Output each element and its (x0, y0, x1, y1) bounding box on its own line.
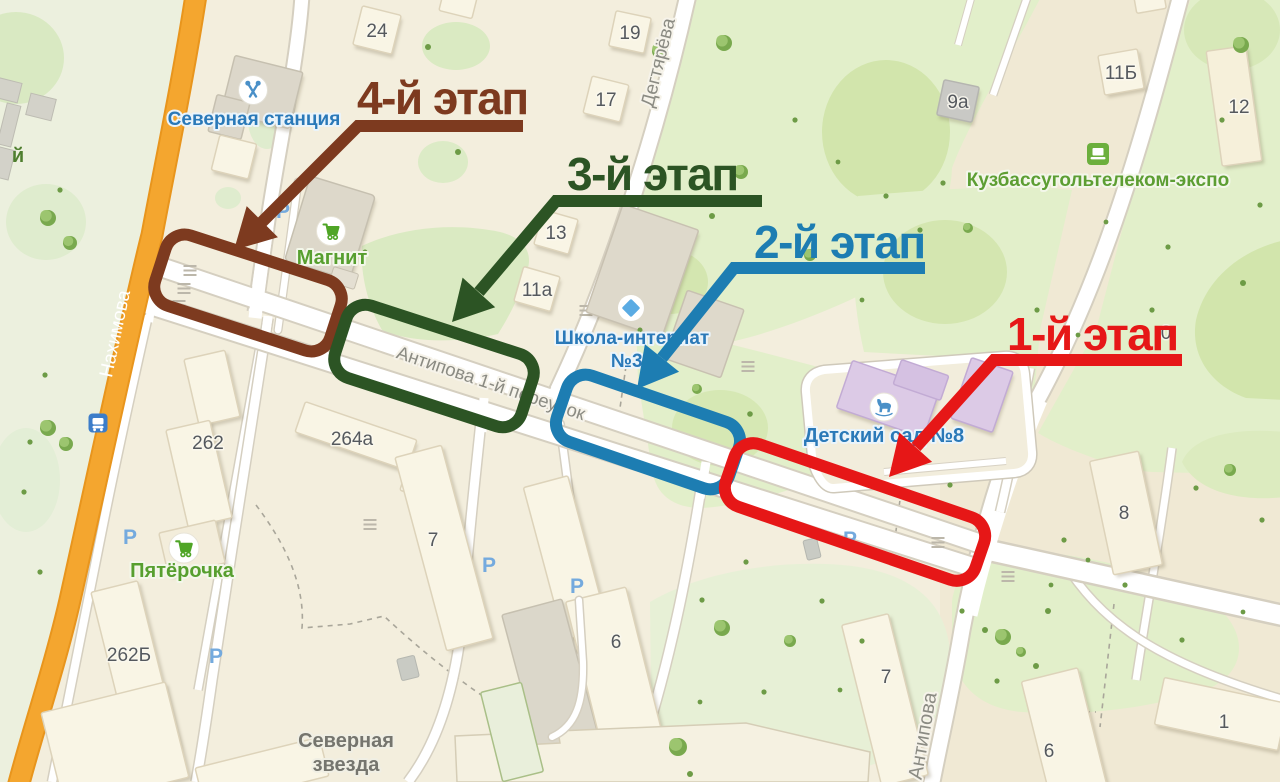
svg-text:1-й этап: 1-й этап (1007, 308, 1178, 360)
svg-text:Пятёрочка: Пятёрочка (130, 560, 235, 582)
svg-text:Р: Р (123, 526, 137, 549)
svg-text:2-й этап: 2-й этап (754, 216, 925, 268)
svg-text:Магнит: Магнит (297, 247, 368, 269)
svg-text:8: 8 (1119, 503, 1130, 524)
svg-text:6: 6 (611, 632, 622, 653)
svg-text:11а: 11а (522, 280, 553, 301)
svg-text:12: 12 (1228, 97, 1249, 118)
svg-text:Северная: Северная (298, 730, 394, 752)
svg-text:Р: Р (570, 575, 584, 598)
svg-text:6: 6 (1044, 741, 1055, 762)
svg-text:1: 1 (1219, 712, 1230, 733)
svg-text:13: 13 (545, 223, 566, 244)
svg-text:3-й этап: 3-й этап (567, 148, 738, 200)
svg-text:11Б: 11Б (1105, 63, 1137, 84)
svg-text:17: 17 (595, 90, 616, 111)
svg-text:Р: Р (482, 554, 496, 577)
svg-text:Р: Р (209, 645, 223, 668)
svg-text:звезда: звезда (313, 754, 381, 776)
svg-text:262Б: 262Б (107, 645, 151, 666)
svg-text:264а: 264а (331, 429, 374, 450)
svg-text:7: 7 (881, 667, 892, 688)
svg-text:9а: 9а (947, 92, 969, 113)
svg-text:Северная станция: Северная станция (168, 109, 341, 130)
svg-text:4-й этап: 4-й этап (357, 72, 528, 124)
svg-text:24: 24 (366, 21, 388, 42)
svg-text:19: 19 (619, 23, 640, 44)
svg-text:Кузбассугольтелеком-экспо: Кузбассугольтелеком-экспо (967, 170, 1229, 191)
svg-text:262: 262 (192, 433, 224, 454)
svg-text:й: й (12, 145, 24, 167)
svg-text:7: 7 (428, 530, 439, 551)
